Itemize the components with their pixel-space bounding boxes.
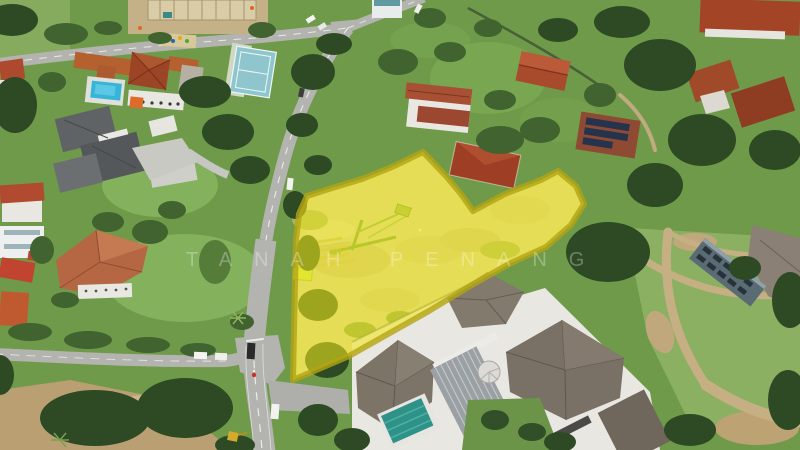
turret (478, 361, 500, 383)
car (215, 353, 227, 360)
orange-canopy (129, 96, 143, 108)
motorbike (252, 373, 256, 377)
construction-site (128, 0, 268, 34)
dumpster (163, 12, 172, 18)
tennis-court (230, 46, 277, 98)
white-colonial-house (402, 82, 472, 133)
aerial-scene (0, 0, 800, 450)
car (270, 404, 279, 420)
swimming-pool (85, 76, 126, 106)
car (194, 352, 207, 359)
suv (247, 343, 256, 359)
aerial-photo: TANAH PENANG (0, 0, 800, 450)
van (286, 178, 293, 191)
